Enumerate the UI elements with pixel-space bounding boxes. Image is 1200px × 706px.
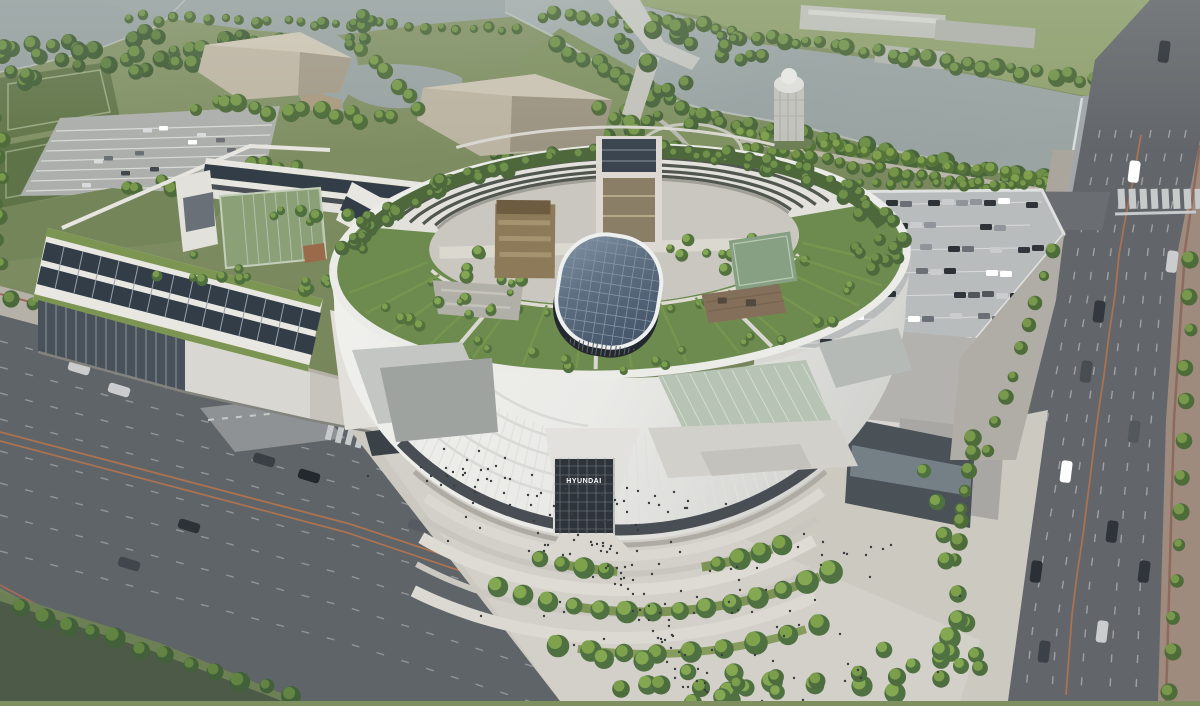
svg-text:HYUNDAI: HYUNDAI bbox=[566, 478, 601, 485]
